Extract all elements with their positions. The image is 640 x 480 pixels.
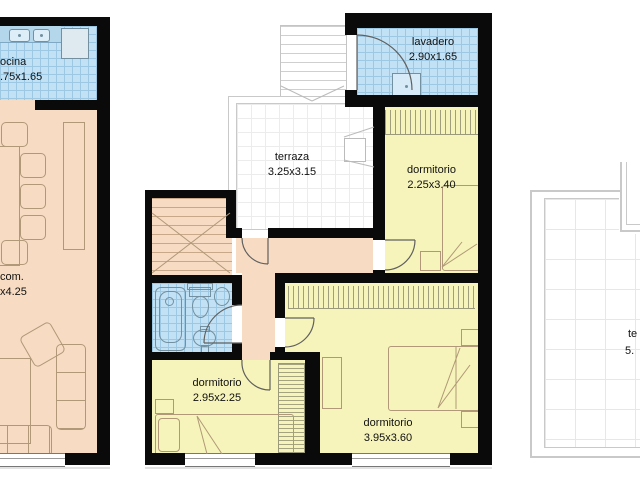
- exterior-lines: [281, 86, 374, 167]
- door-swing: [285, 318, 314, 347]
- bed-fold: [197, 416, 222, 454]
- door-swing: [385, 240, 415, 270]
- terrace-step-lines: [344, 127, 374, 167]
- furniture-lines: [152, 213, 477, 454]
- bed-fold: [438, 348, 470, 408]
- floor-plan-canvas: ocina .75x1.65 com. x4.25: [0, 0, 640, 480]
- bed-fold: [442, 242, 477, 267]
- door-swing: [204, 305, 242, 343]
- annotations-layer: [0, 0, 640, 480]
- door-swing: [242, 238, 268, 264]
- stair-arrow: [281, 86, 344, 101]
- door-swing: [242, 360, 270, 390]
- door-swings: [204, 35, 415, 390]
- stair-diagonal: [152, 213, 230, 273]
- door-swing: [357, 35, 412, 90]
